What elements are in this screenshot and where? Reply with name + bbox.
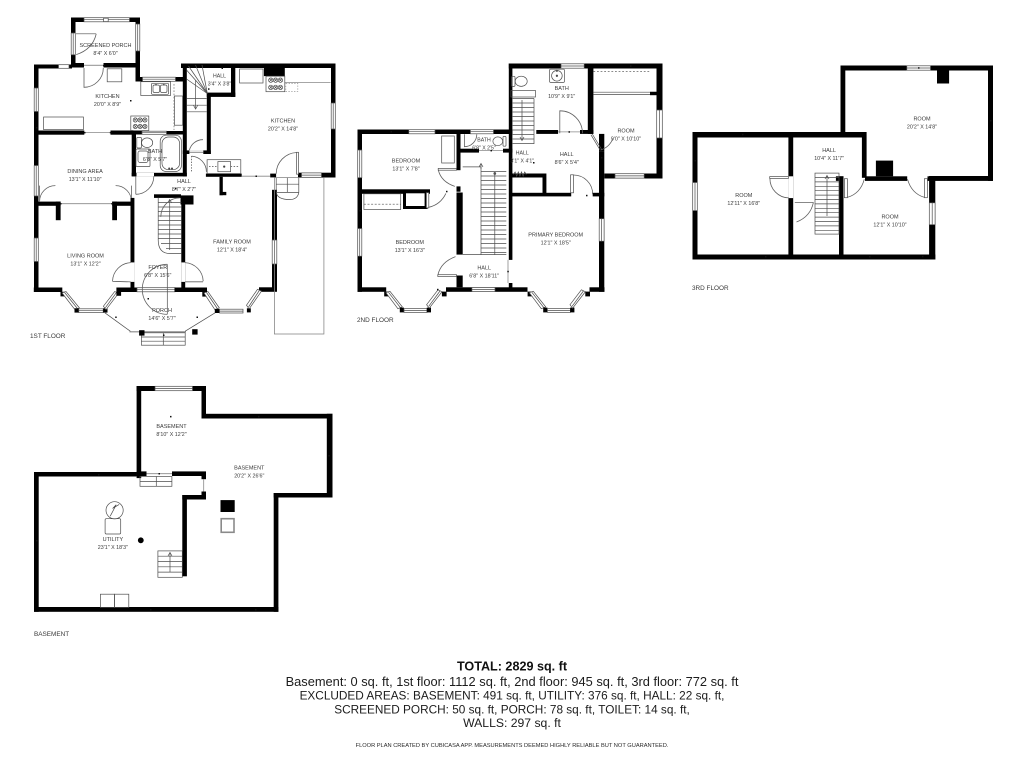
svg-text:6'8" X 15'6": 6'8" X 15'6" (144, 273, 171, 279)
svg-text:1ST FLOOR: 1ST FLOOR (30, 333, 66, 340)
svg-text:ROOM: ROOM (913, 117, 931, 123)
svg-text:TOTAL: 2829 sq. ft: TOTAL: 2829 sq. ft (457, 659, 568, 673)
svg-text:12'11" X 16'8": 12'11" X 16'8" (727, 201, 760, 207)
svg-text:HALL: HALL (177, 179, 191, 185)
svg-text:20'2" X 14'8": 20'2" X 14'8" (268, 127, 298, 133)
svg-text:12'1" X 10'10": 12'1" X 10'10" (873, 222, 906, 228)
svg-text:13'1" X 7'8": 13'1" X 7'8" (392, 167, 419, 173)
svg-text:6'8" X 18'11": 6'8" X 18'11" (469, 273, 499, 279)
svg-text:HALL: HALL (213, 74, 226, 80)
svg-text:20'0" X 8'9": 20'0" X 8'9" (94, 102, 121, 108)
svg-text:BASEMENT: BASEMENT (234, 465, 265, 471)
svg-text:PRIMARY BEDROOM: PRIMARY BEDROOM (528, 233, 583, 239)
svg-text:10'9" X 9'1": 10'9" X 9'1" (548, 94, 575, 100)
svg-text:BEDROOM: BEDROOM (392, 159, 421, 165)
svg-text:13'1" X 12'2": 13'1" X 12'2" (70, 262, 100, 268)
svg-text:SCREENED PORCH: 50 sq. ft, POR: SCREENED PORCH: 50 sq. ft, PORCH: 78 sq.… (334, 702, 690, 716)
svg-text:BATH: BATH (148, 149, 162, 155)
svg-text:13'1" X 16'3": 13'1" X 16'3" (395, 248, 425, 254)
svg-text:3'4" X 3'8": 3'4" X 3'8" (208, 82, 232, 88)
svg-text:8'7" X 2'7": 8'7" X 2'7" (172, 187, 196, 193)
svg-text:FAMILY ROOM: FAMILY ROOM (213, 240, 251, 246)
svg-text:FLOOR PLAN CREATED BY CUBICASA: FLOOR PLAN CREATED BY CUBICASA APP. MEAS… (356, 743, 669, 749)
svg-text:9'0" X 10'10": 9'0" X 10'10" (611, 136, 641, 142)
svg-text:3RD FLOOR: 3RD FLOOR (692, 285, 729, 292)
svg-text:BATH: BATH (555, 86, 569, 92)
svg-text:6'8" X 2'5": 6'8" X 2'5" (472, 146, 496, 152)
svg-text:8'10" X 12'2": 8'10" X 12'2" (156, 432, 186, 438)
svg-text:ROOM: ROOM (617, 128, 635, 134)
svg-text:WALLS: 297 sq. ft: WALLS: 297 sq. ft (463, 716, 561, 730)
svg-text:10'4" X 11'7": 10'4" X 11'7" (814, 156, 844, 162)
svg-text:BEDROOM: BEDROOM (396, 240, 425, 246)
svg-text:14'6" X 5'7": 14'6" X 5'7" (148, 316, 175, 322)
svg-text:23'1" X 18'3": 23'1" X 18'3" (98, 545, 128, 551)
svg-text:SCREENED PORCH: SCREENED PORCH (80, 43, 132, 49)
svg-text:13'1" X 11'10": 13'1" X 11'10" (69, 177, 102, 183)
svg-text:6'8" X 5'7": 6'8" X 5'7" (143, 157, 167, 163)
svg-text:BASEMENT: BASEMENT (156, 424, 187, 430)
svg-text:PORCH: PORCH (152, 308, 172, 314)
svg-text:20'2" X 14'8": 20'2" X 14'8" (907, 125, 937, 131)
svg-text:20'2" X 26'6": 20'2" X 26'6" (234, 473, 264, 479)
svg-text:12'1" X 18'5": 12'1" X 18'5" (541, 241, 571, 247)
svg-text:HALL: HALL (822, 148, 836, 154)
svg-text:KITCHEN: KITCHEN (271, 119, 295, 125)
svg-text:8'6" X 5'4": 8'6" X 5'4" (555, 160, 579, 166)
svg-text:UTILITY: UTILITY (103, 537, 124, 543)
svg-text:8'4" X 6'0": 8'4" X 6'0" (93, 51, 117, 57)
svg-text:3'1" X 4'1": 3'1" X 4'1" (511, 159, 535, 165)
svg-text:12'1" X 18'4": 12'1" X 18'4" (217, 248, 247, 254)
svg-text:BATH: BATH (477, 138, 491, 144)
svg-text:2ND FLOOR: 2ND FLOOR (357, 317, 394, 324)
svg-text:ROOM: ROOM (735, 193, 753, 199)
svg-text:Basement: 0 sq. ft, 1st floor:: Basement: 0 sq. ft, 1st floor: 1112 sq. … (286, 674, 739, 689)
svg-text:LIVING ROOM: LIVING ROOM (67, 254, 104, 260)
svg-text:EXCLUDED AREAS: BASEMENT: 491: EXCLUDED AREAS: BASEMENT: 491 sq. ft, UT… (300, 689, 725, 703)
svg-text:BASEMENT: BASEMENT (34, 631, 69, 638)
svg-text:HALL: HALL (560, 152, 574, 158)
svg-text:FOYER: FOYER (148, 265, 167, 271)
svg-text:KITCHEN: KITCHEN (95, 94, 119, 100)
svg-text:DINING AREA: DINING AREA (67, 169, 103, 175)
svg-text:HALL: HALL (516, 151, 529, 157)
svg-text:HALL: HALL (477, 265, 491, 271)
svg-text:ROOM: ROOM (881, 214, 899, 220)
